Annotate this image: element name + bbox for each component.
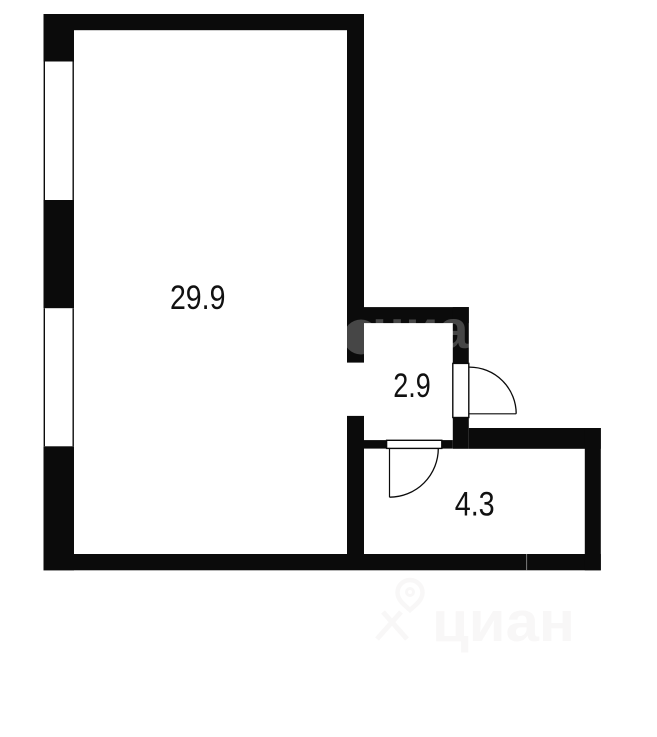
svg-text:2.9: 2.9 <box>393 367 431 405</box>
svg-text:29.9: 29.9 <box>170 279 226 317</box>
svg-text:циан: циан <box>432 590 575 654</box>
svg-text:циан: циан <box>372 300 501 360</box>
svg-text:4.3: 4.3 <box>455 486 495 524</box>
